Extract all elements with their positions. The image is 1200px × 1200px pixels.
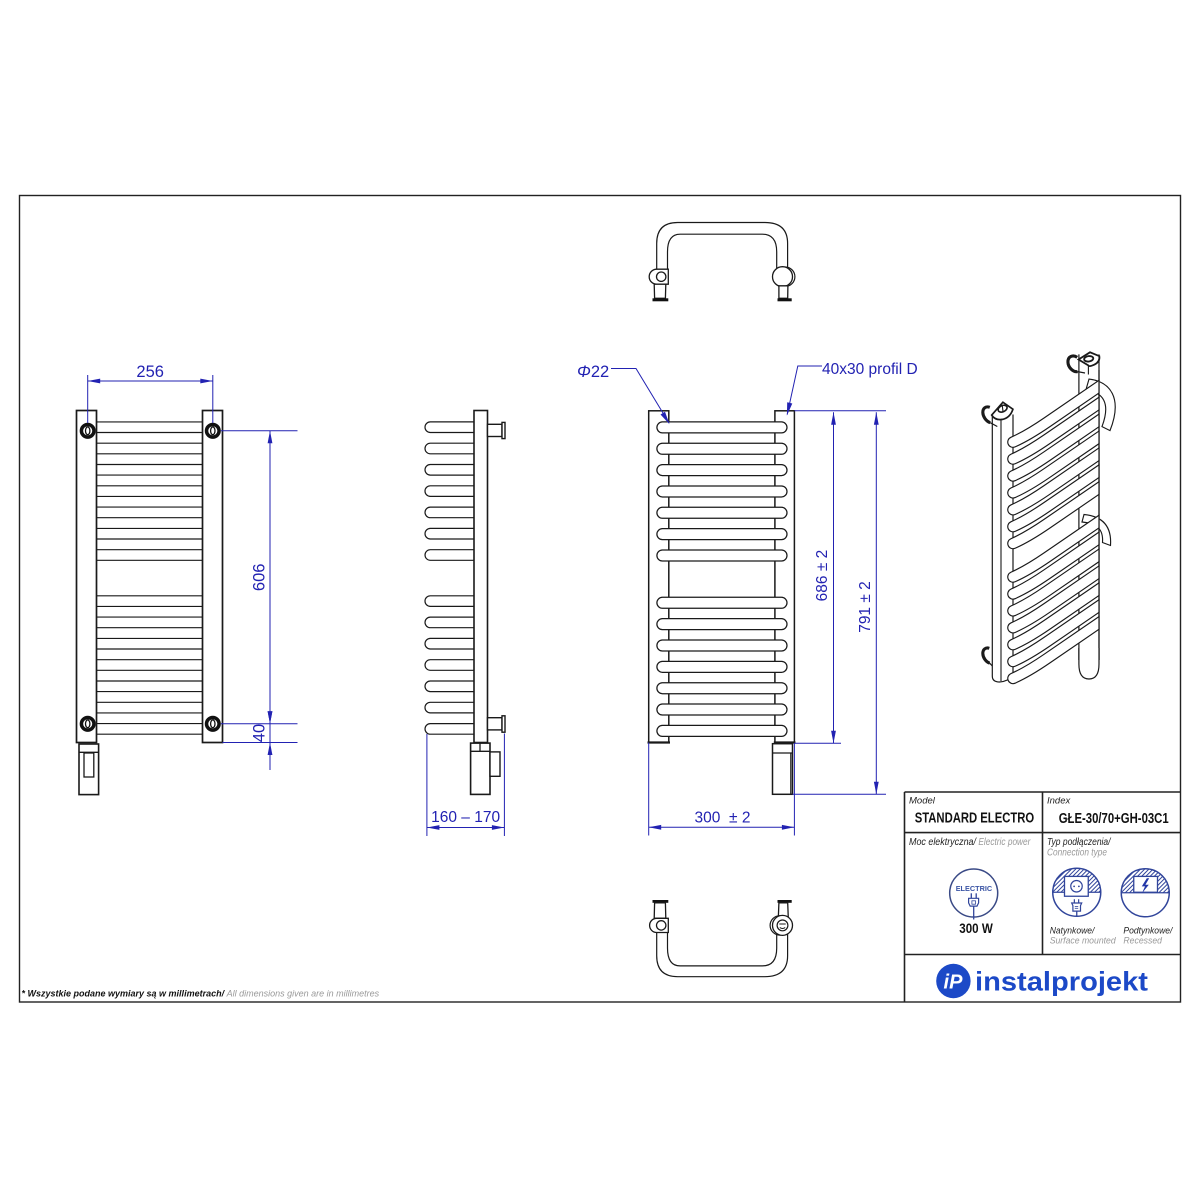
svg-text:Moc elektryczna/: Moc elektryczna/	[909, 837, 977, 848]
svg-text:Connection type: Connection type	[1047, 848, 1107, 859]
svg-text:GŁE-30/70+GH-03C1: GŁE-30/70+GH-03C1	[1059, 810, 1169, 827]
svg-text:Natynkowe/: Natynkowe/	[1050, 926, 1096, 936]
svg-text:160 – 170: 160 – 170	[431, 809, 500, 826]
svg-text:606: 606	[251, 564, 269, 592]
svg-text:Electric power: Electric power	[978, 837, 1031, 848]
svg-text:iP: iP	[944, 972, 964, 994]
svg-text:256: 256	[136, 363, 164, 381]
svg-text:791 ± 2: 791 ± 2	[857, 581, 874, 633]
svg-text:STANDARD ELECTRO: STANDARD ELECTRO	[915, 810, 1035, 827]
svg-text:Φ22: Φ22	[577, 363, 609, 381]
svg-text:Podtynkowe/: Podtynkowe/	[1123, 926, 1173, 936]
svg-text:Recessed: Recessed	[1123, 935, 1162, 945]
svg-text:40x30 profil D: 40x30 profil D	[822, 361, 918, 378]
svg-text:300 ± 2: 300 ± 2	[695, 809, 751, 826]
svg-text:* Wszystkie podane wymiary są: * Wszystkie podane wymiary są w millimet…	[22, 989, 380, 999]
svg-text:instalprojekt: instalprojekt	[975, 967, 1148, 997]
svg-text:Typ podłączenia/: Typ podłączenia/	[1047, 837, 1112, 848]
svg-text:ELECTRIC: ELECTRIC	[956, 884, 993, 893]
svg-text:300 W: 300 W	[959, 921, 993, 936]
svg-text:40: 40	[251, 724, 269, 742]
svg-text:686 ± 2: 686 ± 2	[814, 550, 831, 602]
svg-text:Surface mounted: Surface mounted	[1050, 935, 1117, 945]
svg-text:Index: Index	[1047, 796, 1071, 807]
svg-text:Model: Model	[909, 796, 936, 807]
